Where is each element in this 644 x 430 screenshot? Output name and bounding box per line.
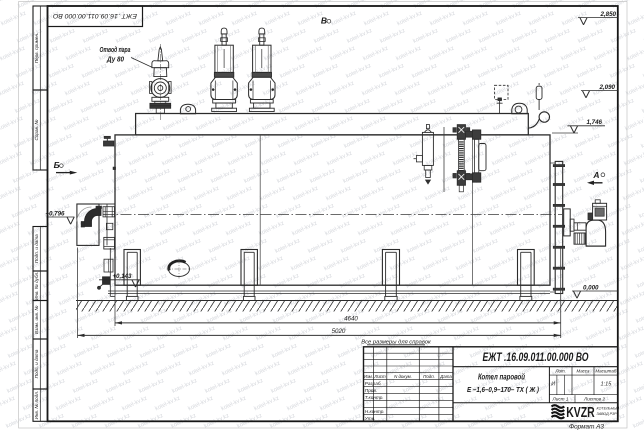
svg-text:В: В: [321, 16, 327, 26]
svg-text:1,746: 1,746: [587, 119, 603, 126]
svg-text:4640: 4640: [344, 315, 358, 322]
svg-text:1:15: 1:15: [600, 382, 612, 388]
svg-text:2,090: 2,090: [599, 84, 616, 91]
svg-text:Б: Б: [54, 160, 60, 170]
svg-text:Лист 1: Лист 1: [552, 397, 569, 402]
svg-text:Котел паровой: Котел паровой: [478, 373, 525, 382]
svg-text:И: И: [551, 382, 555, 388]
svg-text:ЕЖТ .16.09.011.00.000 ВО: ЕЖТ .16.09.011.00.000 ВО: [53, 12, 137, 19]
svg-text:Е –1,6–0,9–170– ТХ ( Ж ): Е –1,6–0,9–170– ТХ ( Ж ): [467, 385, 539, 394]
svg-text:Подп.: Подп.: [423, 374, 435, 379]
svg-text:Взам. инв. №: Взам. инв. №: [34, 306, 39, 334]
svg-text:Н.контр.: Н.контр.: [365, 409, 385, 414]
svg-text:+0,796: +0,796: [45, 210, 65, 217]
svg-text:Пров.: Пров.: [365, 388, 377, 393]
svg-text:Т.контр.: Т.контр.: [365, 395, 384, 400]
svg-text:А: А: [592, 170, 599, 180]
svg-text:Подп. и дата: Подп. и дата: [34, 349, 39, 378]
svg-text:Лит.: Лит.: [555, 369, 566, 374]
svg-text:Изм.: Изм.: [364, 374, 373, 379]
svg-text:Лист: Лист: [373, 374, 386, 379]
svg-text:Формат А3: Формат А3: [569, 423, 604, 430]
svg-text:Масштаб: Масштаб: [595, 369, 617, 374]
svg-text:Инв. № дубл.: Инв. № дубл.: [34, 272, 39, 300]
svg-text:5020: 5020: [332, 328, 346, 335]
svg-text:+0,143: +0,143: [112, 273, 132, 280]
svg-text:Утв.: Утв.: [365, 416, 376, 421]
svg-text:Ду 80: Ду 80: [106, 55, 124, 64]
svg-text:Листов 2: Листов 2: [583, 397, 605, 402]
svg-text:0,000: 0,000: [583, 284, 599, 291]
svg-text:Справ. №: Справ. №: [34, 120, 39, 141]
svg-text:ЕЖТ .16.09.011.00.000 ВО: ЕЖТ .16.09.011.00.000 ВО: [483, 352, 589, 364]
svg-text:Подп. и дата: Подп. и дата: [34, 234, 39, 263]
svg-text:N докум.: N докум.: [394, 374, 412, 379]
svg-text:ЗАВОД РЗР: ЗАВОД РЗР: [597, 412, 618, 416]
svg-text:Перв. примен.: Перв. примен.: [34, 33, 39, 64]
svg-text:Отвод пара: Отвод пара: [100, 45, 131, 54]
svg-text:KVZR: KVZR: [566, 405, 595, 421]
svg-text:Разраб.: Разраб.: [365, 381, 382, 386]
svg-text:2,850: 2,850: [600, 11, 617, 18]
svg-text:Масса: Масса: [577, 369, 591, 374]
svg-text:Дата: Дата: [439, 374, 452, 379]
svg-text:Инв. № подл.: Инв. № подл.: [34, 391, 39, 420]
svg-text:КОТЕЛЬНЫЙ: КОТЕЛЬНЫЙ: [597, 407, 620, 411]
